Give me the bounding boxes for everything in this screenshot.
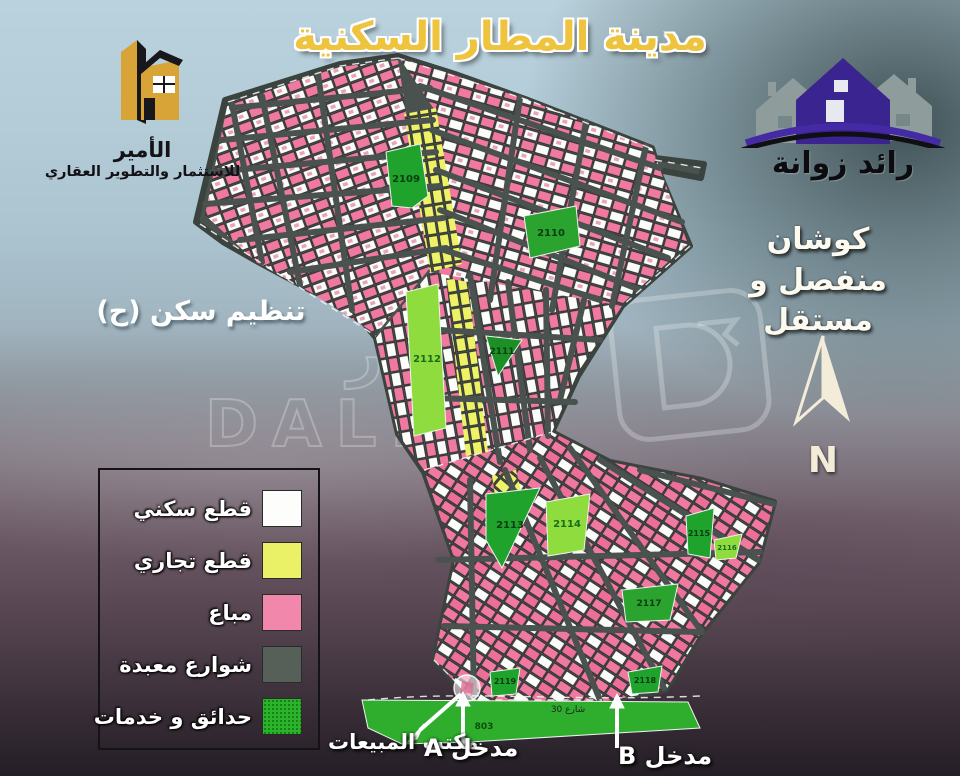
- legend-label: حدائق و خدمات: [94, 705, 252, 729]
- svg-text:2110: 2110: [537, 228, 565, 239]
- poster: العقــار DALEEL: [0, 0, 960, 776]
- legend-label: مباع: [208, 601, 252, 625]
- legend-swatch-residential: [262, 490, 302, 527]
- legend-label: قطع سكني: [133, 497, 252, 521]
- svg-text:2114: 2114: [553, 519, 581, 530]
- agent-logo: رائد زوانة: [738, 38, 948, 181]
- zoning-note: تنظيم سكن (ح): [86, 296, 316, 327]
- agent-name: رائد زوانة: [738, 146, 948, 181]
- legend-row-streets: شوارع معبدة: [100, 646, 310, 683]
- legend-label: قطع تجاري: [134, 549, 252, 573]
- svg-text:2113: 2113: [496, 520, 524, 531]
- page-title: مدينة المطار السكنية: [250, 14, 750, 60]
- compass: N: [778, 330, 868, 480]
- svg-text:2112: 2112: [413, 354, 441, 365]
- legend: قطع سكني قطع تجاري مباع شوارع معبدة حدائ…: [98, 468, 320, 750]
- svg-text:2111: 2111: [489, 347, 514, 357]
- developer-name: الأمير: [30, 138, 255, 162]
- entrance-b-label: مدخل B: [618, 742, 712, 770]
- entrance-a-label: مدخل A: [424, 734, 518, 762]
- compass-label: N: [778, 440, 868, 481]
- agent-logo-icon: [738, 38, 948, 148]
- legend-row-sold: مباع: [100, 594, 310, 631]
- svg-text:2109: 2109: [392, 174, 420, 185]
- legend-swatch-sold: [262, 594, 302, 631]
- svg-text:2117: 2117: [636, 599, 661, 609]
- svg-text:2118: 2118: [634, 676, 657, 685]
- north-arrow-icon: [778, 330, 868, 440]
- developer-logo: الأمير للاستثمار والتطوير العقاري: [30, 34, 255, 180]
- deed-note: كوشان منفصل و مستقل: [698, 220, 938, 342]
- legend-swatch-commercial: [262, 542, 302, 579]
- legend-swatch-streets: [262, 646, 302, 683]
- legend-swatch-parks: [262, 698, 302, 735]
- svg-text:2115: 2115: [688, 529, 711, 538]
- legend-label: شوارع معبدة: [119, 653, 252, 677]
- developer-subtitle: للاستثمار والتطوير العقاري: [30, 164, 255, 180]
- legend-row-residential: قطع سكني: [100, 490, 310, 527]
- svg-text:2116: 2116: [717, 544, 737, 552]
- legend-row-parks: حدائق و خدمات: [100, 698, 310, 735]
- svg-text:2119: 2119: [494, 677, 517, 686]
- developer-logo-icon: [83, 34, 203, 134]
- street-label: شارع 30: [551, 705, 585, 715]
- legend-row-commercial: قطع تجاري: [100, 542, 310, 579]
- deed-note-line1: كوشان: [698, 220, 938, 261]
